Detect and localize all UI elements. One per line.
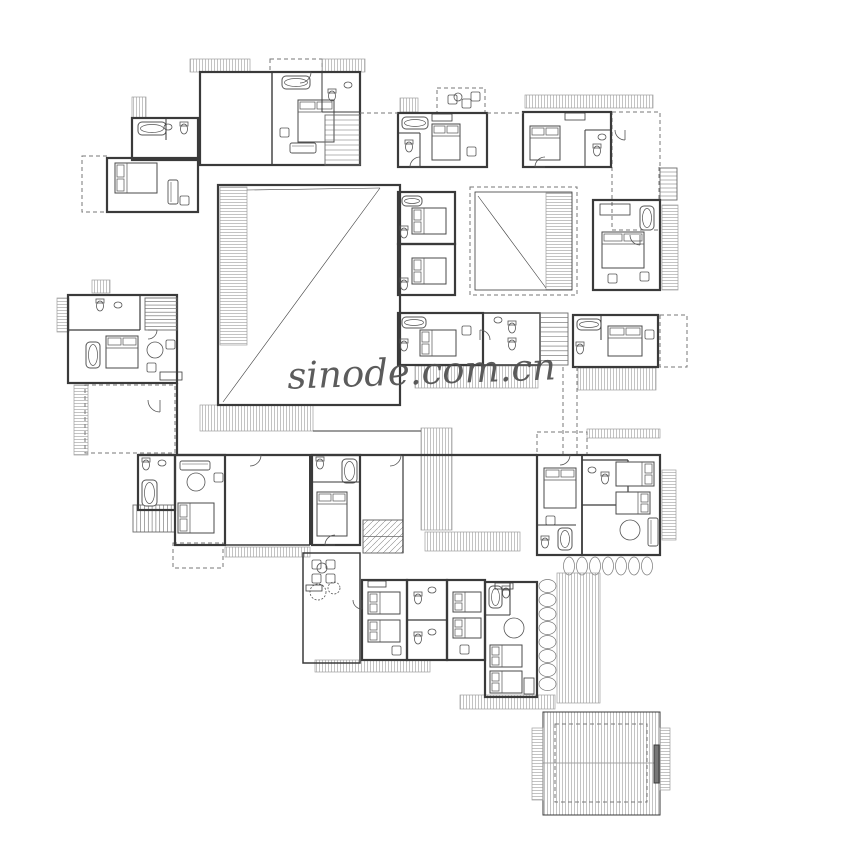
bed xyxy=(602,232,644,268)
sofa xyxy=(180,461,210,470)
bed xyxy=(412,258,446,284)
tbl xyxy=(620,520,640,540)
tub xyxy=(402,317,426,328)
sink xyxy=(344,82,352,88)
pavilion-bar xyxy=(654,745,659,783)
tub xyxy=(86,342,100,368)
bed xyxy=(608,326,642,356)
tub xyxy=(282,76,310,89)
wc xyxy=(405,140,413,152)
door xyxy=(148,400,160,412)
tub xyxy=(402,117,428,129)
stones-south xyxy=(564,557,653,575)
bed xyxy=(544,468,576,508)
wc xyxy=(180,122,188,134)
tbl xyxy=(147,342,163,358)
sink xyxy=(428,587,436,593)
ch xyxy=(166,340,175,349)
wc xyxy=(593,144,601,156)
patio xyxy=(303,553,360,663)
ch xyxy=(608,274,617,283)
bed xyxy=(106,336,138,368)
bed xyxy=(317,492,347,536)
bed xyxy=(453,592,481,612)
deck-twin-top xyxy=(587,429,660,438)
deck-top-left xyxy=(190,59,250,72)
wc xyxy=(142,458,150,470)
tub xyxy=(138,122,166,135)
pavilion-right-ticks xyxy=(660,728,670,790)
terrace-twin xyxy=(537,432,587,455)
stones-east xyxy=(539,580,556,691)
bed xyxy=(616,492,650,514)
wc xyxy=(400,278,408,290)
deck-courtyard-south xyxy=(200,405,313,431)
door xyxy=(615,130,625,140)
door xyxy=(410,157,420,167)
master-suite xyxy=(200,72,360,165)
porch-lower-left xyxy=(173,543,223,568)
ch xyxy=(392,646,401,655)
watermark: sinode.com.cn xyxy=(287,345,557,397)
ch xyxy=(448,95,457,104)
floor-plan-canvas: sinode.com.cn xyxy=(0,0,860,852)
bed xyxy=(178,503,214,533)
tree xyxy=(328,582,340,594)
wc xyxy=(508,321,516,333)
plan-layer xyxy=(57,59,687,815)
rect xyxy=(306,585,322,591)
wc xyxy=(414,632,422,644)
pavilion-roof-top xyxy=(543,712,660,763)
ch xyxy=(214,473,223,482)
bed xyxy=(616,462,654,486)
ch xyxy=(312,560,321,569)
sink xyxy=(598,134,606,140)
pavilion-left-ticks xyxy=(532,728,543,800)
bed xyxy=(453,618,481,638)
rect xyxy=(368,581,386,587)
courtyard-steps xyxy=(220,187,247,345)
stair-east-top xyxy=(660,168,677,200)
wc xyxy=(400,339,408,351)
ch xyxy=(471,92,480,101)
deck-top-right xyxy=(525,95,653,108)
tbl xyxy=(454,93,462,101)
bed xyxy=(412,208,446,234)
door xyxy=(250,455,261,466)
rect xyxy=(432,114,452,121)
ch xyxy=(312,574,321,583)
deck-bottom-east xyxy=(557,573,600,703)
bed xyxy=(432,124,460,160)
deck-suite1-top xyxy=(132,97,146,118)
bed xyxy=(368,620,400,642)
wc xyxy=(502,586,510,598)
terrace-west xyxy=(85,385,175,453)
ch xyxy=(147,363,156,372)
ch xyxy=(180,196,189,205)
bed xyxy=(490,645,522,667)
terrace-roomF xyxy=(660,315,687,367)
walk-twin-east xyxy=(662,470,676,540)
tub xyxy=(342,459,357,483)
bed xyxy=(115,163,157,193)
tub xyxy=(558,528,572,550)
porch-suite1 xyxy=(82,156,107,212)
wc xyxy=(328,89,336,101)
rect xyxy=(565,113,585,120)
ch xyxy=(460,645,469,654)
boardwalk-center xyxy=(425,532,520,551)
wc xyxy=(400,226,408,238)
wc xyxy=(541,536,549,548)
deck-top-dashed xyxy=(270,59,322,72)
rect xyxy=(160,372,182,380)
wc xyxy=(316,457,324,469)
courtyard2-diag xyxy=(478,196,546,288)
stair-west xyxy=(145,298,177,330)
sink xyxy=(588,467,596,473)
courtyard-diag-a xyxy=(247,188,380,190)
deck-roomB-left xyxy=(400,98,418,112)
wc xyxy=(576,342,584,354)
deck-top-mid xyxy=(322,59,365,72)
tub xyxy=(577,319,601,330)
sofa xyxy=(648,518,658,546)
tub xyxy=(402,196,422,206)
sink xyxy=(428,629,436,635)
tbl xyxy=(187,473,205,491)
ch xyxy=(467,147,476,156)
tree xyxy=(310,584,326,600)
bed xyxy=(298,100,334,142)
bed xyxy=(530,126,560,160)
ch xyxy=(326,574,335,583)
step-left-b xyxy=(92,280,110,293)
bed xyxy=(368,592,400,614)
door xyxy=(560,455,570,465)
tub xyxy=(640,206,654,230)
stair-diagonal xyxy=(363,520,403,553)
deck-roomF xyxy=(578,368,656,390)
sink xyxy=(158,460,166,466)
tub xyxy=(142,480,157,506)
ramp-center xyxy=(421,428,452,530)
rect xyxy=(600,204,630,215)
tbl xyxy=(504,618,524,638)
tbl xyxy=(317,563,327,573)
courtyard2-steps xyxy=(546,193,572,290)
ch xyxy=(645,330,654,339)
pavilion-roof-bottom xyxy=(543,763,660,815)
ch xyxy=(462,326,471,335)
sink xyxy=(114,302,122,308)
door xyxy=(148,330,157,339)
ch xyxy=(280,128,289,137)
walk-east xyxy=(662,205,678,290)
deck-bottom-wing xyxy=(315,660,430,672)
ch xyxy=(462,99,471,108)
ch xyxy=(546,516,555,525)
bed xyxy=(490,671,522,693)
boardwalk-hall xyxy=(225,547,310,557)
wc xyxy=(414,592,422,604)
sofa xyxy=(168,180,178,204)
rect xyxy=(524,678,534,694)
floor-plan-svg: sinode.com.cn xyxy=(0,0,860,852)
wc xyxy=(601,472,609,484)
ch xyxy=(640,272,649,281)
door xyxy=(390,455,401,466)
sink xyxy=(494,317,502,323)
door xyxy=(480,330,490,340)
step-left-c xyxy=(74,385,88,455)
sofa xyxy=(290,143,316,153)
wc xyxy=(96,299,104,311)
